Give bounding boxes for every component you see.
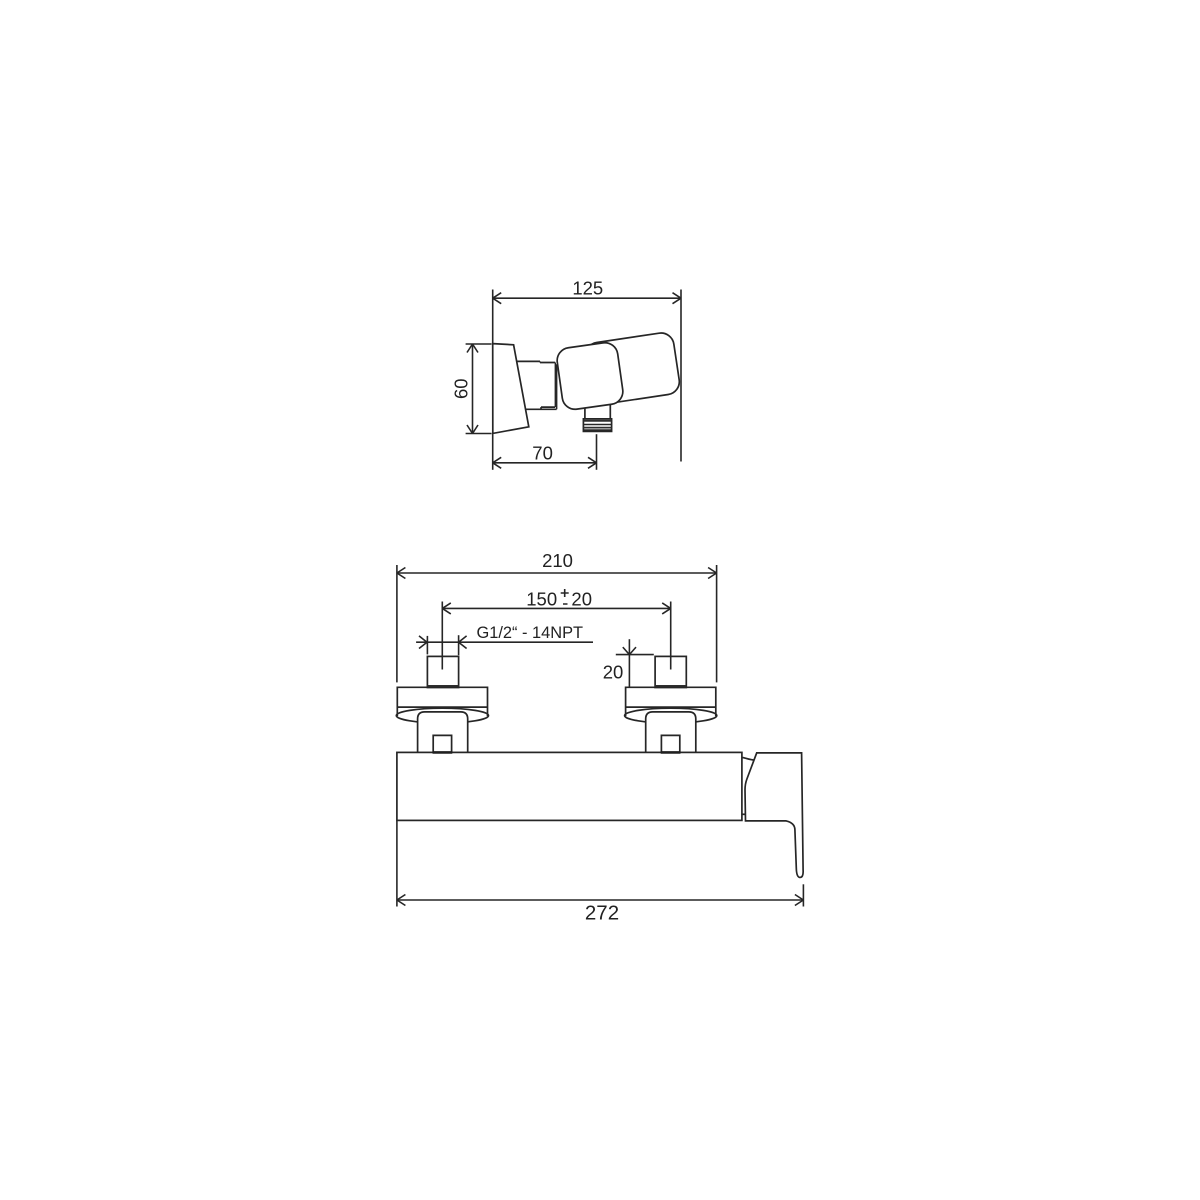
svg-text:125: 125 — [572, 278, 603, 299]
svg-text:210: 210 — [542, 550, 573, 571]
svg-text:70: 70 — [532, 443, 553, 464]
svg-text:150: 150 — [526, 589, 557, 610]
svg-text:60: 60 — [451, 378, 472, 399]
svg-text:20: 20 — [571, 589, 592, 610]
svg-text:G1/2“ - 14NPT: G1/2“ - 14NPT — [477, 624, 584, 642]
svg-text:272: 272 — [585, 902, 619, 925]
svg-text:20: 20 — [603, 662, 624, 683]
